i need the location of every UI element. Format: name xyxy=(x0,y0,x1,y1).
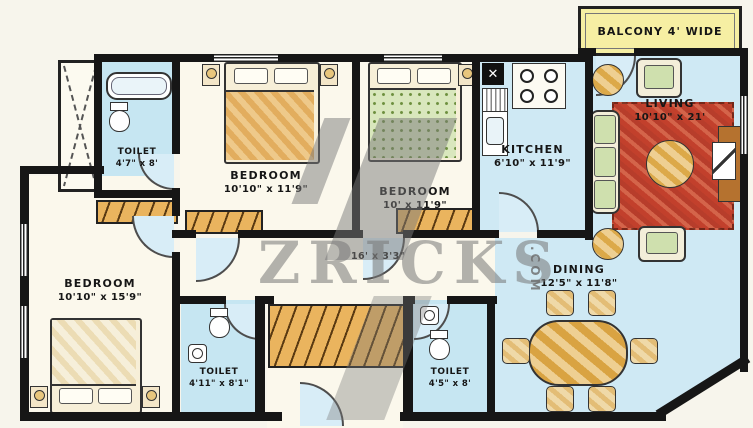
toilet-bottom-center-label: TOILET 4'5" x 8' xyxy=(409,366,491,390)
wall-bottom-right xyxy=(400,412,666,421)
balcony-label: BALCONY 4' WIDE xyxy=(597,25,722,38)
wc-icon-top xyxy=(108,102,130,132)
wall-toiletTop-left xyxy=(94,54,102,198)
room-dims: 10'10" x 15'9" xyxy=(30,291,170,305)
wall-toiletC-right xyxy=(255,296,265,421)
wall-bedroomC-top xyxy=(20,166,104,174)
blanket xyxy=(52,320,136,386)
blanket xyxy=(226,90,314,160)
duct-x-icon: ✕ xyxy=(482,63,504,85)
burner xyxy=(520,89,534,103)
pillow xyxy=(377,68,411,84)
armchair-top xyxy=(636,58,682,98)
room-name: LIVING xyxy=(610,96,730,111)
side-table xyxy=(202,64,220,86)
room-dims: 4'5" x 8' xyxy=(409,379,491,391)
room-dims: 4'11" x 8'1" xyxy=(181,379,257,391)
side-table-round xyxy=(592,64,624,96)
wall-spine-c xyxy=(172,252,180,412)
wc-icon-bottom-center xyxy=(428,330,450,360)
coffee-table xyxy=(646,140,694,188)
armchair-cushion xyxy=(646,232,678,254)
wc-icon-bottom-left xyxy=(208,308,230,338)
burner xyxy=(544,69,558,83)
window-bedC-a xyxy=(20,224,28,276)
bed-top-left xyxy=(224,62,320,164)
side-table xyxy=(30,386,48,408)
wall-spine-b xyxy=(172,188,180,216)
toilet-bottom-left-label: TOILET 4'11" x 8'1" xyxy=(181,366,257,390)
wall-toiletD-right xyxy=(487,296,495,421)
dining-chair xyxy=(630,338,658,364)
side-table xyxy=(142,386,160,408)
wall-toiletTop-bottom xyxy=(94,190,180,198)
floor-plan: BALCONY 4' WIDE xyxy=(0,0,753,428)
wall-spine-a xyxy=(172,54,180,154)
bedroom-bottom-left-label: BEDROOM 10'10" x 15'9" xyxy=(30,276,170,305)
sink-basin-icon xyxy=(486,117,504,145)
window-bedC-b xyxy=(20,306,28,358)
side-table-round xyxy=(592,228,624,260)
dining-chair xyxy=(588,290,616,316)
wall-kitchen-living xyxy=(585,54,593,240)
tv-icon xyxy=(712,142,736,180)
dining-chair xyxy=(546,386,574,412)
dining-chair xyxy=(588,386,616,412)
living-label: LIVING 10'10" x 21' xyxy=(610,96,730,125)
wall-passage-a xyxy=(172,230,196,238)
room-dims: 4'7" x 8' xyxy=(102,159,172,171)
watermark-text: ZRICKS xyxy=(258,234,562,292)
wall-balcony-b xyxy=(634,48,748,56)
wall-toiletC-top-a xyxy=(172,296,226,304)
room-name: KITCHEN xyxy=(480,142,585,157)
burner xyxy=(544,89,558,103)
room-name: TOILET xyxy=(102,146,172,159)
window-living xyxy=(740,96,748,154)
drainboard xyxy=(483,89,507,112)
wall-top xyxy=(94,54,592,62)
bathtub-icon xyxy=(106,72,172,100)
burner xyxy=(520,69,534,83)
sofa-cushion xyxy=(594,147,616,176)
window-bedB xyxy=(384,54,442,62)
kitchen-label: KITCHEN 6'10" x 11'9" xyxy=(480,142,585,171)
pillow xyxy=(274,68,308,84)
bed-bottom-left xyxy=(50,318,142,414)
pillow xyxy=(59,388,93,404)
pillow xyxy=(234,68,268,84)
side-table xyxy=(320,64,338,86)
room-name: TOILET xyxy=(409,366,491,379)
sofa xyxy=(590,110,620,214)
dining-chair xyxy=(502,338,530,364)
wall-left xyxy=(20,166,29,421)
room-dims: 6'10" x 11'9" xyxy=(480,157,585,171)
watermark-tld: .COM xyxy=(528,246,542,294)
pillow xyxy=(417,68,451,84)
sofa-cushion xyxy=(594,180,616,209)
toilet-top-left-label: TOILET 4'7" x 8' xyxy=(102,146,172,170)
dining-table xyxy=(528,320,628,386)
pillow xyxy=(98,388,132,404)
basin-icon-bottom-left xyxy=(188,344,207,363)
balcony-inner: BALCONY 4' WIDE xyxy=(585,13,735,49)
room-dims: 10'10" x 21' xyxy=(610,111,730,125)
window-bedA xyxy=(214,54,278,62)
armchair-bottom xyxy=(638,226,686,262)
stove-icon xyxy=(512,63,566,109)
room-name: BEDROOM xyxy=(30,276,170,291)
room-name: TOILET xyxy=(181,366,257,379)
wall-bottom-left xyxy=(20,412,282,421)
armchair-cushion xyxy=(644,65,674,89)
